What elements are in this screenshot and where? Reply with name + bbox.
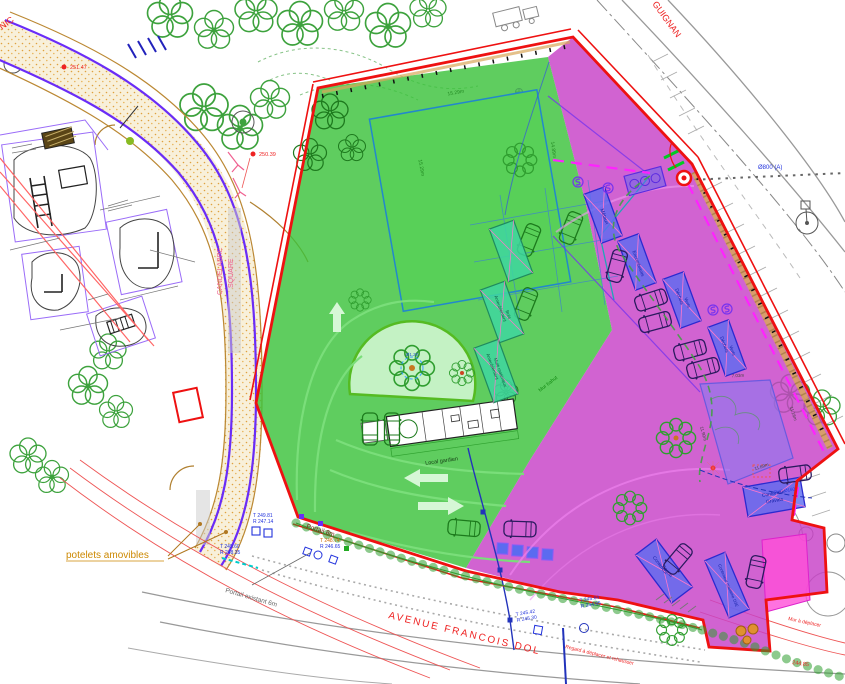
truck-icon bbox=[493, 3, 541, 33]
site-plan-canvas: Local gardien bbox=[0, 0, 845, 684]
np3-r: R 246.65 bbox=[320, 544, 341, 550]
note-potelets: potelets amovibles bbox=[66, 550, 149, 561]
label-candelabre: CANDELABRE bbox=[217, 247, 224, 295]
playground-item bbox=[14, 145, 174, 346]
utility-line-d800 bbox=[688, 173, 845, 180]
label-square: SQUARE bbox=[228, 258, 235, 288]
red-marker-box bbox=[173, 388, 203, 422]
pedestrian-path bbox=[0, 12, 308, 570]
gate-post2 bbox=[318, 521, 323, 526]
np1-r: R 247.14 bbox=[253, 519, 274, 525]
level-pt1: 251.47 bbox=[70, 65, 87, 71]
street-name-partial-right: GUIGNAN bbox=[650, 0, 683, 39]
dim-quad-top: 7.03m bbox=[732, 373, 745, 379]
np2-r: R 248.35 bbox=[220, 550, 241, 556]
note-portail-existant: Portail existant 6m bbox=[224, 587, 277, 608]
level-pt2: 250.39 bbox=[259, 152, 276, 158]
label-d800: Ø800 (A) bbox=[758, 165, 782, 171]
dimension-lines bbox=[10, 144, 195, 330]
bench bbox=[42, 127, 75, 149]
gate-post bbox=[299, 514, 304, 519]
playground-frames bbox=[0, 120, 182, 356]
dim-tree-ring: Ø1.20 bbox=[406, 352, 419, 357]
playground-equipment-icons bbox=[30, 166, 158, 334]
sports-field bbox=[369, 90, 570, 312]
alignment-lines bbox=[0, 158, 154, 346]
door-swing-icon2 bbox=[170, 466, 194, 490]
site-plan: Local gardien bbox=[0, 0, 845, 684]
note-mur-deplacer: Mur à déplacer bbox=[788, 616, 822, 629]
level-pt3: 244.85 bbox=[792, 660, 809, 668]
